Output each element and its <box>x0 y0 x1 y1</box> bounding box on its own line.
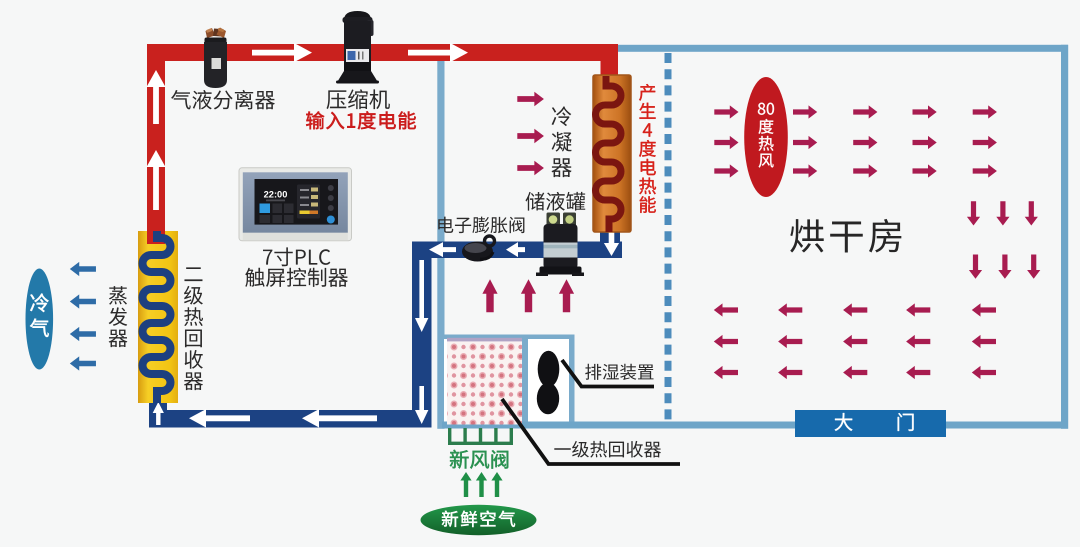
svg-text:22:00: 22:00 <box>264 190 288 200</box>
